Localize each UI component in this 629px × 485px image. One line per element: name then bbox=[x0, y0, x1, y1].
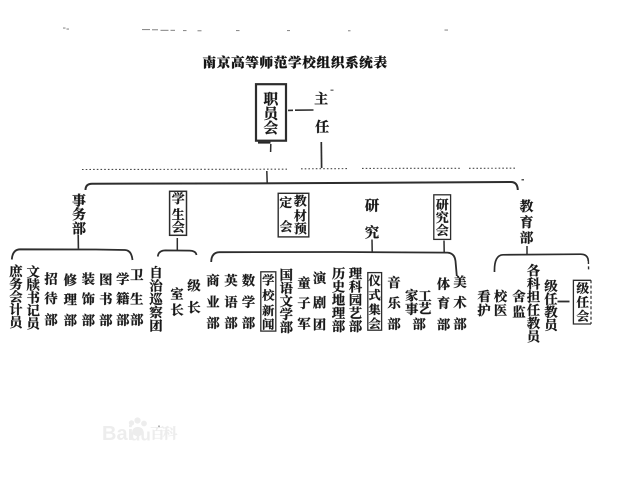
svg-text:Bai: Bai bbox=[102, 423, 133, 445]
